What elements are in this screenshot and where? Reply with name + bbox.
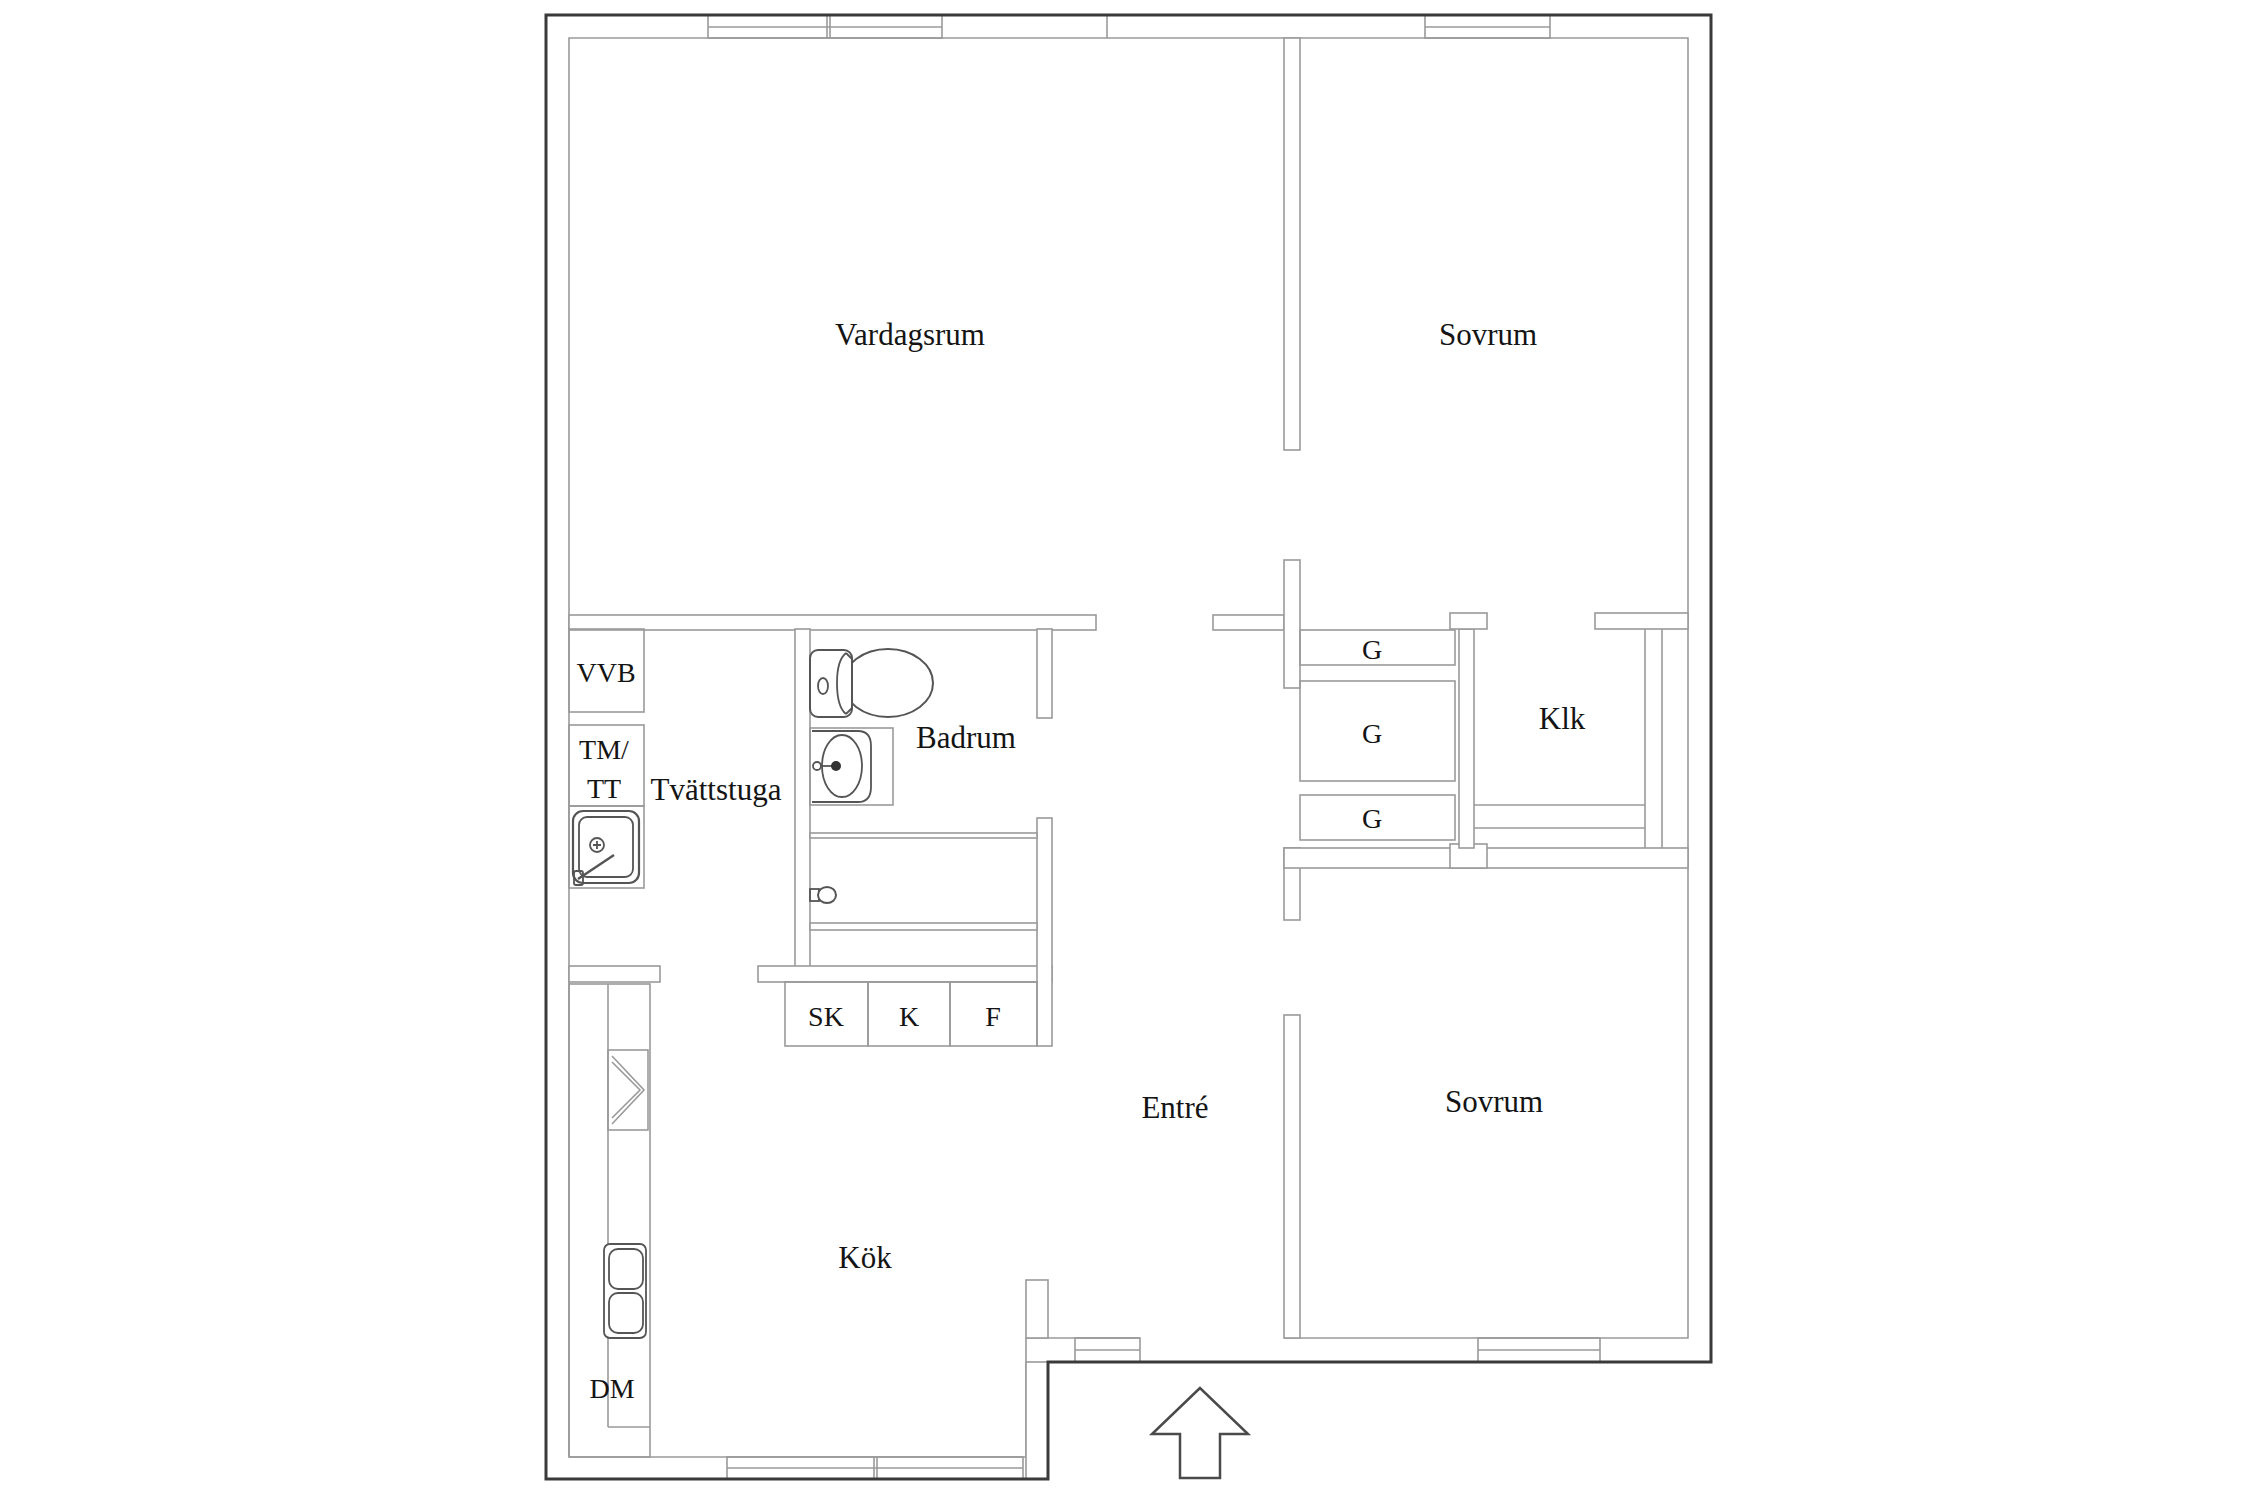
label-dm: DM bbox=[589, 1373, 634, 1404]
label-tm: TM/ bbox=[579, 734, 629, 765]
window-icon-vardagsrum bbox=[708, 15, 1107, 38]
label-g-bottom: G bbox=[1362, 803, 1382, 834]
wall-vardagsrum-bottom bbox=[569, 615, 1096, 630]
wall-badrum-right-upper bbox=[1037, 629, 1052, 718]
bathroom-fixtures bbox=[810, 649, 933, 903]
wall-kok-entre-stub bbox=[1026, 1280, 1048, 1338]
label-sk: SK bbox=[808, 1001, 844, 1032]
window-icon-sovrum-bottom bbox=[1478, 1338, 1600, 1362]
room-label-vardagsrum: Vardagsrum bbox=[835, 317, 985, 352]
wall-tvattstuga-right bbox=[795, 629, 810, 982]
door-handle-icon bbox=[810, 887, 836, 903]
outer-wall-outline bbox=[546, 15, 1711, 1479]
inner-perimeter-lines bbox=[569, 38, 1688, 1457]
room-label-badrum: Badrum bbox=[916, 720, 1016, 755]
wall-divider-upper bbox=[1284, 38, 1300, 450]
wall-badrum-right-lower bbox=[1037, 818, 1052, 1046]
label-g-top: G bbox=[1362, 634, 1382, 665]
room-label-entre: Entré bbox=[1141, 1090, 1208, 1125]
wall-badrum-partition bbox=[810, 833, 1037, 838]
floor-plan-page: Vardagsrum Sovrum Sovrum Kök Entré Badru… bbox=[0, 0, 2250, 1500]
wall-divider-mid bbox=[1284, 560, 1300, 688]
interior-walls bbox=[569, 38, 1688, 1479]
laundry-sink-icon bbox=[573, 811, 639, 885]
floor-plan-drawing: Vardagsrum Sovrum Sovrum Kök Entré Badru… bbox=[0, 0, 2250, 1500]
wall-vardagsrum-bottom-right bbox=[1213, 615, 1284, 630]
room-label-klk: Klk bbox=[1539, 701, 1586, 736]
wall-klk-left bbox=[1459, 629, 1474, 848]
closets-and-cabinets bbox=[569, 629, 1662, 1046]
room-label-kok: Kök bbox=[838, 1240, 892, 1275]
wall-klk-left-flange bbox=[1450, 613, 1487, 629]
toilet-icon bbox=[810, 649, 933, 717]
wall-bottom-step bbox=[1026, 1362, 1048, 1479]
wall-badrum-bottom bbox=[758, 966, 1052, 982]
window-icon-sovrum-top bbox=[1425, 15, 1550, 38]
room-label-sovrum-bottom: Sovrum bbox=[1445, 1084, 1543, 1119]
stove-icon bbox=[608, 1050, 648, 1130]
bathroom-sink-icon bbox=[810, 728, 893, 805]
label-tt: TT bbox=[587, 773, 621, 804]
window-icon-entrance-sidelight bbox=[1075, 1338, 1140, 1362]
label-g-middle: G bbox=[1362, 718, 1382, 749]
wall-klk-top bbox=[1595, 613, 1688, 629]
wall-tvattstuga-bottom bbox=[569, 966, 660, 982]
room-label-tvattstuga: Tvättstuga bbox=[651, 772, 782, 807]
kitchen-double-sink-icon bbox=[604, 1244, 646, 1338]
window-icon-kok bbox=[727, 1457, 1023, 1479]
wall-shower-bottom bbox=[810, 923, 1037, 930]
room-label-sovrum-top: Sovrum bbox=[1439, 317, 1537, 352]
label-vvb: VVB bbox=[576, 657, 635, 688]
label-f: F bbox=[985, 1001, 1001, 1032]
wall-entre-sovrum bbox=[1284, 1015, 1300, 1338]
label-k: K bbox=[899, 1001, 919, 1032]
entrance-arrow-icon bbox=[1152, 1388, 1248, 1478]
